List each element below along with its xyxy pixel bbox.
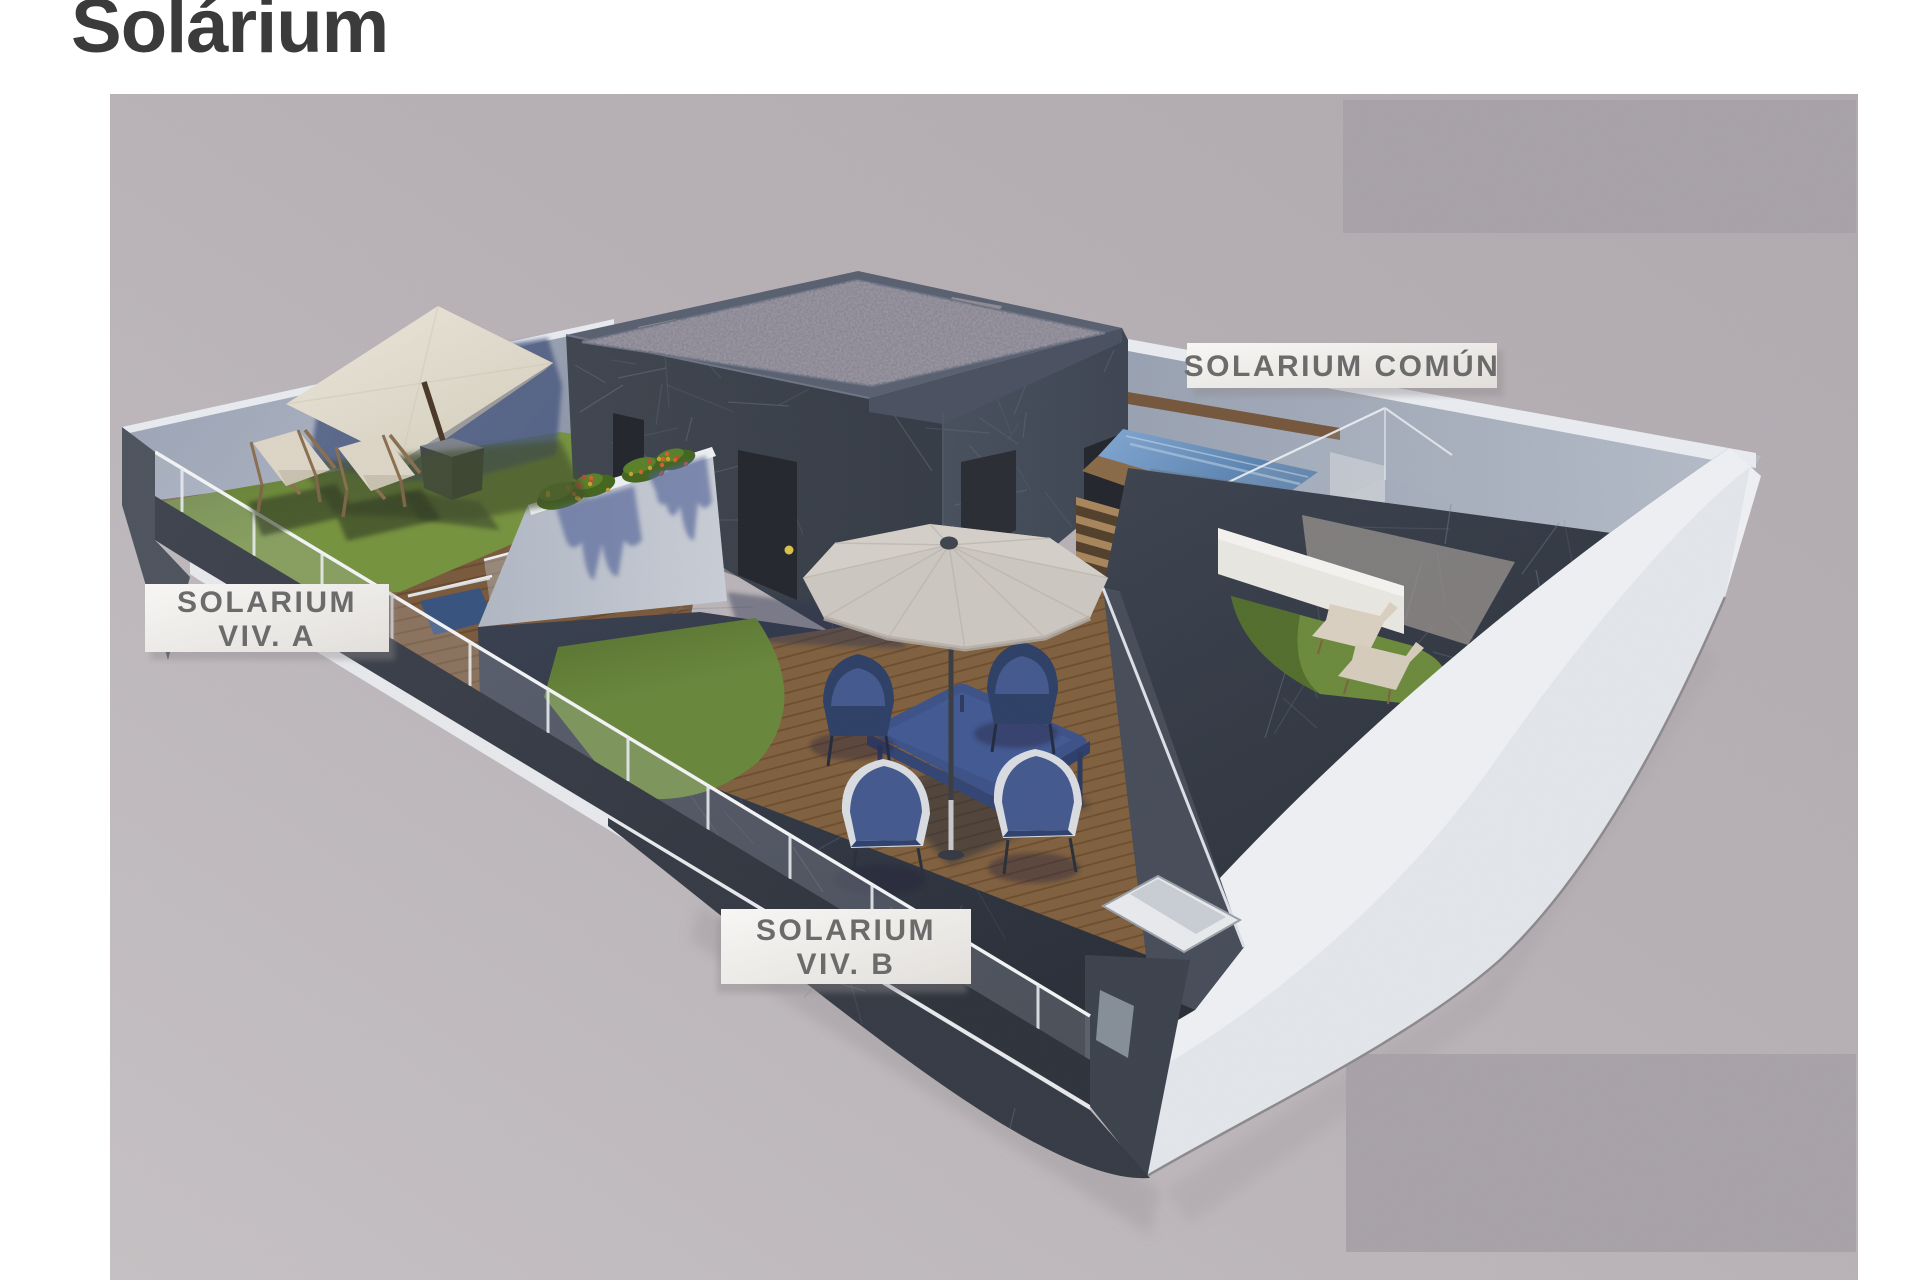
svg-text:SOLARIUM: SOLARIUM: [177, 586, 357, 619]
svg-text:VIV. A: VIV. A: [218, 620, 316, 653]
svg-text:Solárium: Solárium: [71, 0, 388, 69]
svg-text:SOLARIUM: SOLARIUM: [756, 914, 936, 947]
svg-text:VIV. B: VIV. B: [797, 948, 896, 981]
svg-text:SOLARIUM COMÚN: SOLARIUM COMÚN: [1184, 349, 1501, 383]
